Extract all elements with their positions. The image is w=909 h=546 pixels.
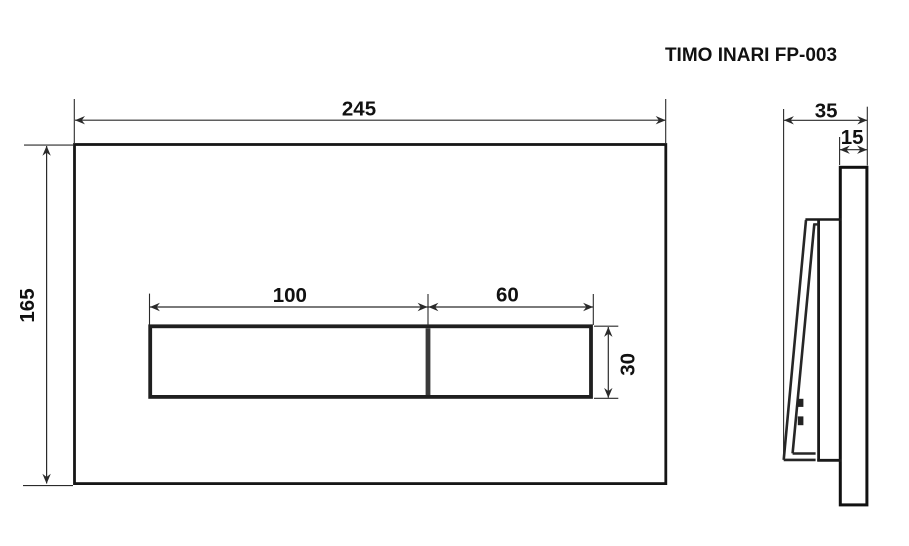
svg-text:245: 245 xyxy=(342,98,376,121)
svg-text:35: 35 xyxy=(815,100,838,123)
svg-text:30: 30 xyxy=(617,353,640,376)
svg-text:15: 15 xyxy=(841,126,864,149)
svg-text:TIMO INARI FP-003: TIMO INARI FP-003 xyxy=(665,45,837,66)
svg-text:100: 100 xyxy=(273,284,307,307)
svg-text:165: 165 xyxy=(16,288,39,322)
svg-text:60: 60 xyxy=(496,284,519,307)
